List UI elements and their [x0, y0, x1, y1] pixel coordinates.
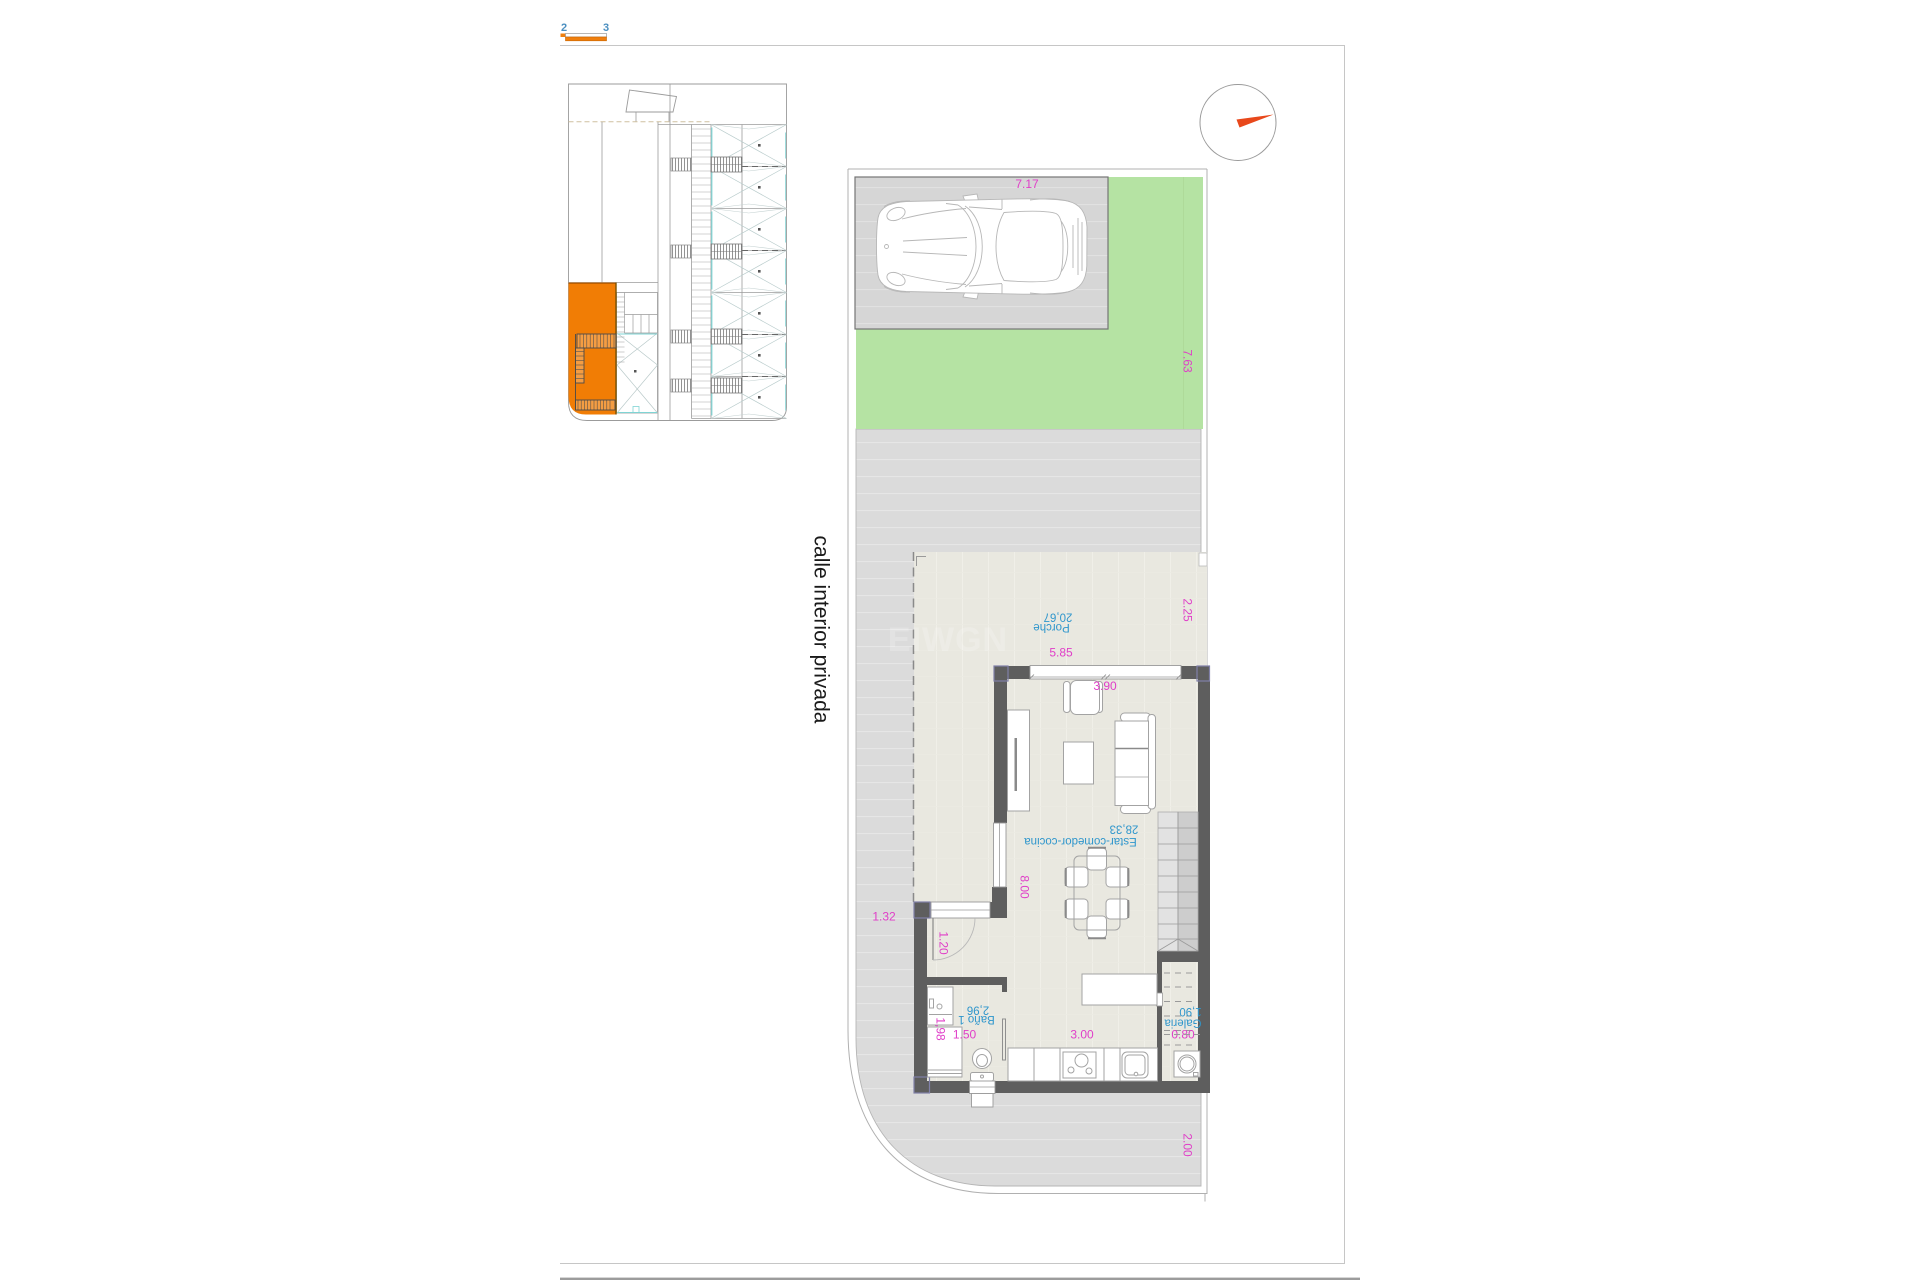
- svg-text:8.00: 8.00: [1018, 875, 1032, 899]
- svg-text:5.85: 5.85: [1049, 646, 1073, 660]
- svg-text:3.90: 3.90: [1093, 679, 1117, 693]
- svg-text:calle interior privada: calle interior privada: [810, 536, 833, 724]
- svg-text:1,98: 1,98: [934, 1017, 948, 1041]
- svg-text:EIWGN: EIWGN: [888, 621, 1008, 659]
- svg-text:2.25: 2.25: [1181, 598, 1195, 622]
- svg-text:2.00: 2.00: [1181, 1133, 1195, 1157]
- svg-text:2,96: 2,96: [967, 1004, 989, 1016]
- svg-text:7.17: 7.17: [1015, 177, 1039, 191]
- svg-text:1.32: 1.32: [872, 910, 896, 924]
- svg-text:1,90: 1,90: [1179, 1005, 1201, 1017]
- svg-text:20,67: 20,67: [1044, 611, 1073, 623]
- svg-text:1.50: 1.50: [953, 1028, 977, 1042]
- svg-text:Galeria: Galeria: [1164, 1017, 1202, 1029]
- svg-text:2: 2: [561, 22, 567, 34]
- svg-text:3: 3: [603, 22, 609, 34]
- svg-text:7.63: 7.63: [1181, 349, 1195, 373]
- svg-text:1.20: 1.20: [937, 931, 951, 955]
- svg-text:28,33: 28,33: [1110, 823, 1139, 835]
- svg-text:Estar-comedor-cocina: Estar-comedor-cocina: [1024, 835, 1137, 847]
- svg-text:3.00: 3.00: [1070, 1028, 1094, 1042]
